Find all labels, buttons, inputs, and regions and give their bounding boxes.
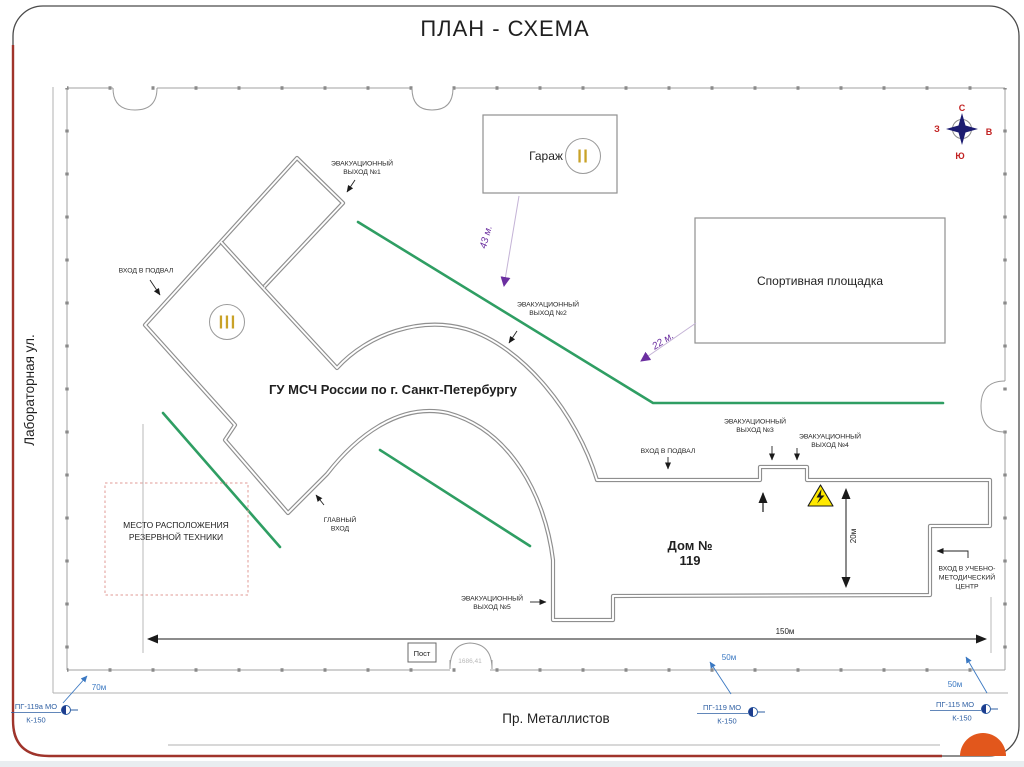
hydrant-2-name: ПГ-119 МО bbox=[703, 703, 741, 712]
svg-text:ВХОД В УЧЕБНО-: ВХОД В УЧЕБНО- bbox=[939, 566, 996, 573]
svg-text:ЭВАКУАЦИОННЫЙ: ЭВАКУАЦИОННЫЙ bbox=[517, 300, 579, 309]
plan-schema-slide: ПЛАН - СХЕМА Лабораторная ул. Пр. Металл… bbox=[0, 0, 1024, 767]
corner-accent-icon bbox=[960, 733, 1006, 756]
main-building-label: ГУ МСЧ России по г. Санкт-Петербургу bbox=[269, 382, 518, 397]
gate-number: 1686,41 bbox=[458, 658, 482, 665]
hydrant-2-distance: 50м bbox=[722, 653, 736, 662]
compass-s: Ю bbox=[955, 151, 964, 161]
exit-5: ЭВАКУАЦИОННЫЙ ВЫХОД №5 bbox=[461, 594, 546, 612]
exit-1: ЭВАКУАЦИОННЫЙ ВЫХОД №1 bbox=[331, 159, 393, 193]
route-22m-label: 22 м. bbox=[650, 330, 677, 353]
page-title: ПЛАН - СХЕМА bbox=[420, 16, 589, 41]
hydrant-icon bbox=[982, 705, 999, 714]
exit-3: ЭВАКУАЦИОННЫЙ ВЫХОД №3 bbox=[724, 417, 786, 461]
svg-text:ЭВАКУАЦИОННЫЙ: ЭВАКУАЦИОННЫЙ bbox=[724, 417, 786, 426]
compass-w: З bbox=[934, 124, 940, 134]
dimension-20m-label: 20м bbox=[849, 529, 858, 543]
exit-4: ЭВАКУАЦИОННЫЙ ВЫХОД №4 bbox=[797, 432, 861, 461]
site-plan-canvas: ПЛАН - СХЕМА Лабораторная ул. Пр. Металл… bbox=[0, 0, 1024, 767]
basement-entrance-left: ВХОД В ПОДВАЛ bbox=[119, 268, 174, 296]
gate-icon bbox=[412, 88, 453, 110]
sports-ground-label: Спортивная площадка bbox=[757, 274, 883, 288]
route-line bbox=[380, 450, 530, 546]
svg-text:ВХОД: ВХОД bbox=[331, 526, 350, 533]
svg-text:ВЫХОД №5: ВЫХОД №5 bbox=[473, 604, 511, 611]
hydrant-3-distance: 50м bbox=[948, 680, 962, 689]
svg-text:ВЫХОД №1: ВЫХОД №1 bbox=[343, 169, 381, 176]
main-entrance: ГЛАВНЫЙ ВХОД bbox=[316, 495, 356, 533]
hydrant-1-name: ПГ-119а МО bbox=[15, 702, 57, 711]
hydrant-2: 50м ПГ-119 МО К-150 bbox=[697, 653, 765, 726]
dimension-150m-label: 150м bbox=[776, 627, 795, 636]
wing-roundel bbox=[210, 305, 245, 340]
reserve-label-line1: МЕСТО РАСПОЛОЖЕНИЯ bbox=[123, 520, 229, 530]
checkpoint-label: Пост bbox=[414, 649, 431, 658]
house-number-line2: 119 bbox=[680, 553, 701, 568]
svg-text:ВЫХОД №2: ВЫХОД №2 bbox=[529, 310, 567, 317]
street-label-bottom: Пр. Металлистов bbox=[502, 711, 609, 726]
hydrant-3-name: ПГ-115 МО bbox=[936, 700, 974, 709]
main-gate-icon bbox=[450, 643, 492, 669]
hydrant-3: 50м ПГ-115 МО К-150 bbox=[930, 657, 998, 723]
garage-label: Гараж bbox=[529, 149, 563, 163]
compass-e: В bbox=[986, 127, 993, 137]
training-center-entrance: ВХОД В УЧЕБНО- МЕТОДИЧЕСКИЙ ЦЕНТР bbox=[937, 551, 995, 591]
svg-text:ЭВАКУАЦИОННЫЙ: ЭВАКУАЦИОННЫЙ bbox=[331, 159, 393, 168]
hydrant-2-main: К-150 bbox=[717, 717, 736, 726]
house-number-line1: Дом № bbox=[668, 538, 713, 553]
svg-text:ГЛАВНЫЙ: ГЛАВНЫЙ bbox=[324, 515, 357, 524]
hydrant-1: 70м ПГ-119а МО К-150 bbox=[11, 676, 106, 725]
hydrant-icon bbox=[62, 706, 79, 715]
svg-text:МЕТОДИЧЕСКИЙ: МЕТОДИЧЕСКИЙ bbox=[939, 573, 995, 582]
hydrant-3-main: К-150 bbox=[952, 714, 971, 723]
svg-text:ВЫХОД №3: ВЫХОД №3 bbox=[736, 427, 774, 434]
gate-icon bbox=[113, 88, 157, 110]
svg-text:ЦЕНТР: ЦЕНТР bbox=[955, 584, 979, 591]
hydrant-1-distance: 70м bbox=[92, 683, 106, 692]
compass-n: С bbox=[959, 103, 966, 113]
svg-text:ВЫХОД №4: ВЫХОД №4 bbox=[811, 442, 849, 449]
svg-text:ВХОД В ПОДВАЛ: ВХОД В ПОДВАЛ bbox=[119, 268, 174, 275]
svg-text:ЭВАКУАЦИОННЫЙ: ЭВАКУАЦИОННЫЙ bbox=[799, 432, 861, 441]
street-label-left: Лабораторная ул. bbox=[22, 334, 37, 445]
svg-text:ВХОД В ПОДВАЛ: ВХОД В ПОДВАЛ bbox=[641, 448, 696, 455]
garage-roundel bbox=[566, 139, 601, 174]
compass-rose-icon: С Ю З В bbox=[934, 103, 993, 161]
svg-text:ЭВАКУАЦИОННЫЙ: ЭВАКУАЦИОННЫЙ bbox=[461, 594, 523, 603]
route-43m: 43 м. bbox=[478, 196, 519, 286]
route-22m: 22 м. bbox=[641, 323, 696, 361]
slide-edge-strip bbox=[0, 761, 1024, 767]
hydrant-1-main: К-150 bbox=[26, 716, 45, 725]
gate-icon bbox=[981, 381, 1005, 432]
basement-entrance-bottom: ВХОД В ПОДВАЛ bbox=[641, 448, 696, 469]
route-43m-label: 43 м. bbox=[478, 224, 495, 250]
hydrant-icon bbox=[749, 708, 766, 717]
